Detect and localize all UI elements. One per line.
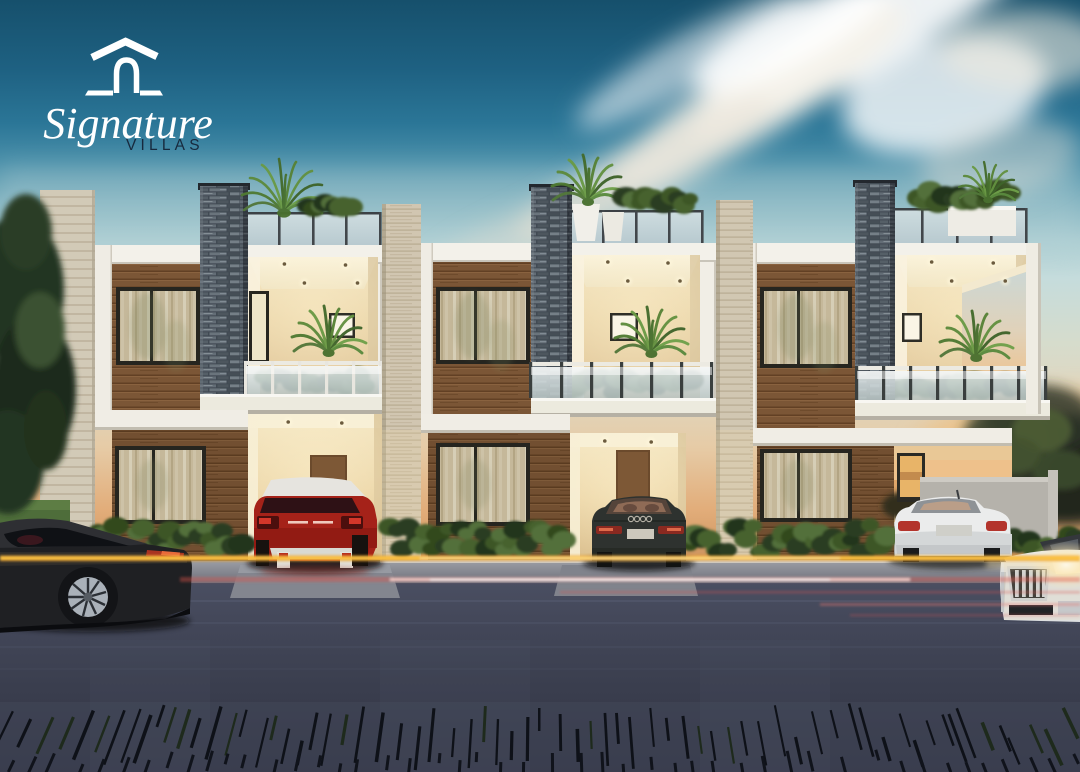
svg-text:VILLAS: VILLAS <box>126 137 204 154</box>
